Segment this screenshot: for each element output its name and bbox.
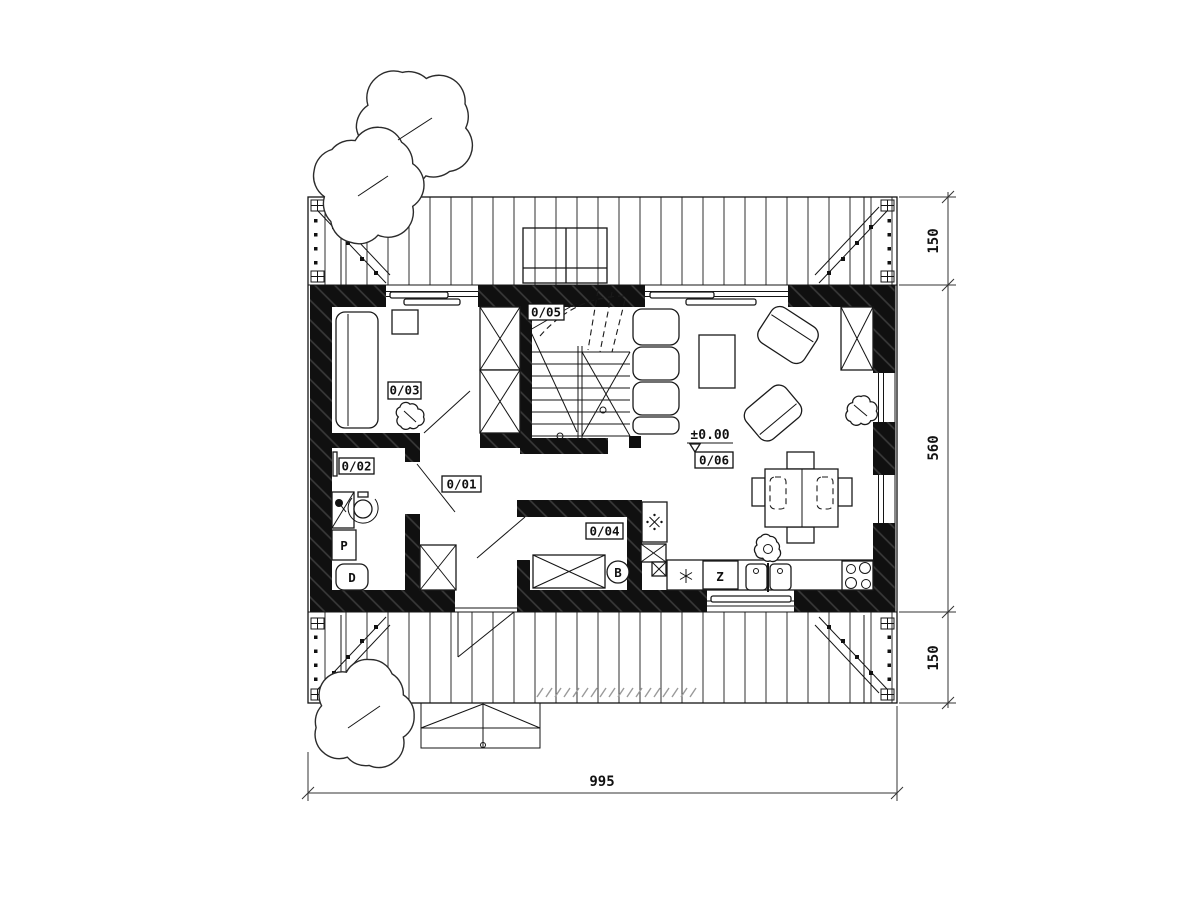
room-label-bath: 0/02: [341, 459, 371, 474]
room-label-stairs: 0/05: [531, 305, 561, 320]
level-text: ±0.00: [690, 428, 729, 443]
utility-cabinet: [533, 555, 605, 588]
toilet: D: [336, 564, 368, 590]
boiler-label: B: [614, 565, 622, 580]
wardrobe-bedroom: [480, 307, 520, 433]
shower: [332, 492, 354, 528]
faucet-plant: [754, 534, 780, 561]
dim-overhang-top: 150: [926, 228, 942, 253]
dim-width: 995: [589, 774, 614, 790]
armchair-1: [754, 303, 822, 368]
room-label-bedroom: 0/03: [389, 383, 419, 398]
plant-living: [846, 396, 877, 426]
hall-furniture: [420, 545, 456, 590]
window-right-lower: [879, 475, 884, 523]
boiler-badge: B: [607, 561, 629, 583]
dining-chair-bottom: [787, 527, 814, 543]
coffee-table: [699, 335, 735, 388]
floor-plan-canvas: P D B: [0, 0, 1200, 900]
dining-chair-right: [838, 478, 852, 506]
entrance-canopy: [421, 703, 540, 748]
washing-machine: P: [332, 530, 356, 560]
dining-chair-left: [752, 478, 765, 506]
room-label-living: 0/06: [699, 453, 729, 468]
armchair-2: [740, 381, 806, 445]
base-cabinet-x: [641, 544, 666, 576]
level-marker: ±0.00: [687, 428, 733, 452]
sofa: [633, 309, 679, 434]
window-bedroom-top: [386, 292, 478, 306]
dimension-right: 150 560 150: [899, 191, 956, 709]
bedroom-door-leaf: [424, 391, 470, 433]
nightstand: [392, 310, 418, 334]
utility-door-leaf: [477, 517, 525, 558]
wc-label: D: [348, 570, 356, 585]
cooktop: [842, 561, 873, 590]
living-furniture: ±0.00: [633, 303, 877, 543]
flue-block: [629, 436, 641, 448]
wardrobe-hall: [420, 545, 456, 590]
dishwasher-label: Z: [716, 569, 724, 584]
window-kitchen-bottom: [707, 596, 794, 606]
dim-depth: 560: [926, 435, 942, 460]
radiator: [650, 292, 714, 298]
dining-chair-top: [787, 452, 814, 469]
plant-bedroom: [396, 402, 424, 429]
radiator: [390, 292, 448, 298]
room-label-hall: 0/01: [446, 477, 476, 492]
tall-cabinet: [642, 502, 667, 542]
radiator-bath: [333, 452, 337, 476]
washer-label: P: [340, 538, 348, 553]
dishwasher: Z: [703, 561, 738, 589]
bed: [336, 312, 378, 428]
dim-overhang-bottom: 150: [926, 645, 942, 670]
bedroom-furniture: [336, 307, 520, 433]
wardrobe-living: [841, 307, 873, 370]
radiator: [711, 596, 791, 602]
room-label-utility: 0/04: [589, 524, 619, 539]
radiator: [686, 299, 756, 305]
radiator: [404, 299, 460, 305]
window-living-top: [645, 292, 788, 306]
dining-table: [752, 452, 852, 543]
